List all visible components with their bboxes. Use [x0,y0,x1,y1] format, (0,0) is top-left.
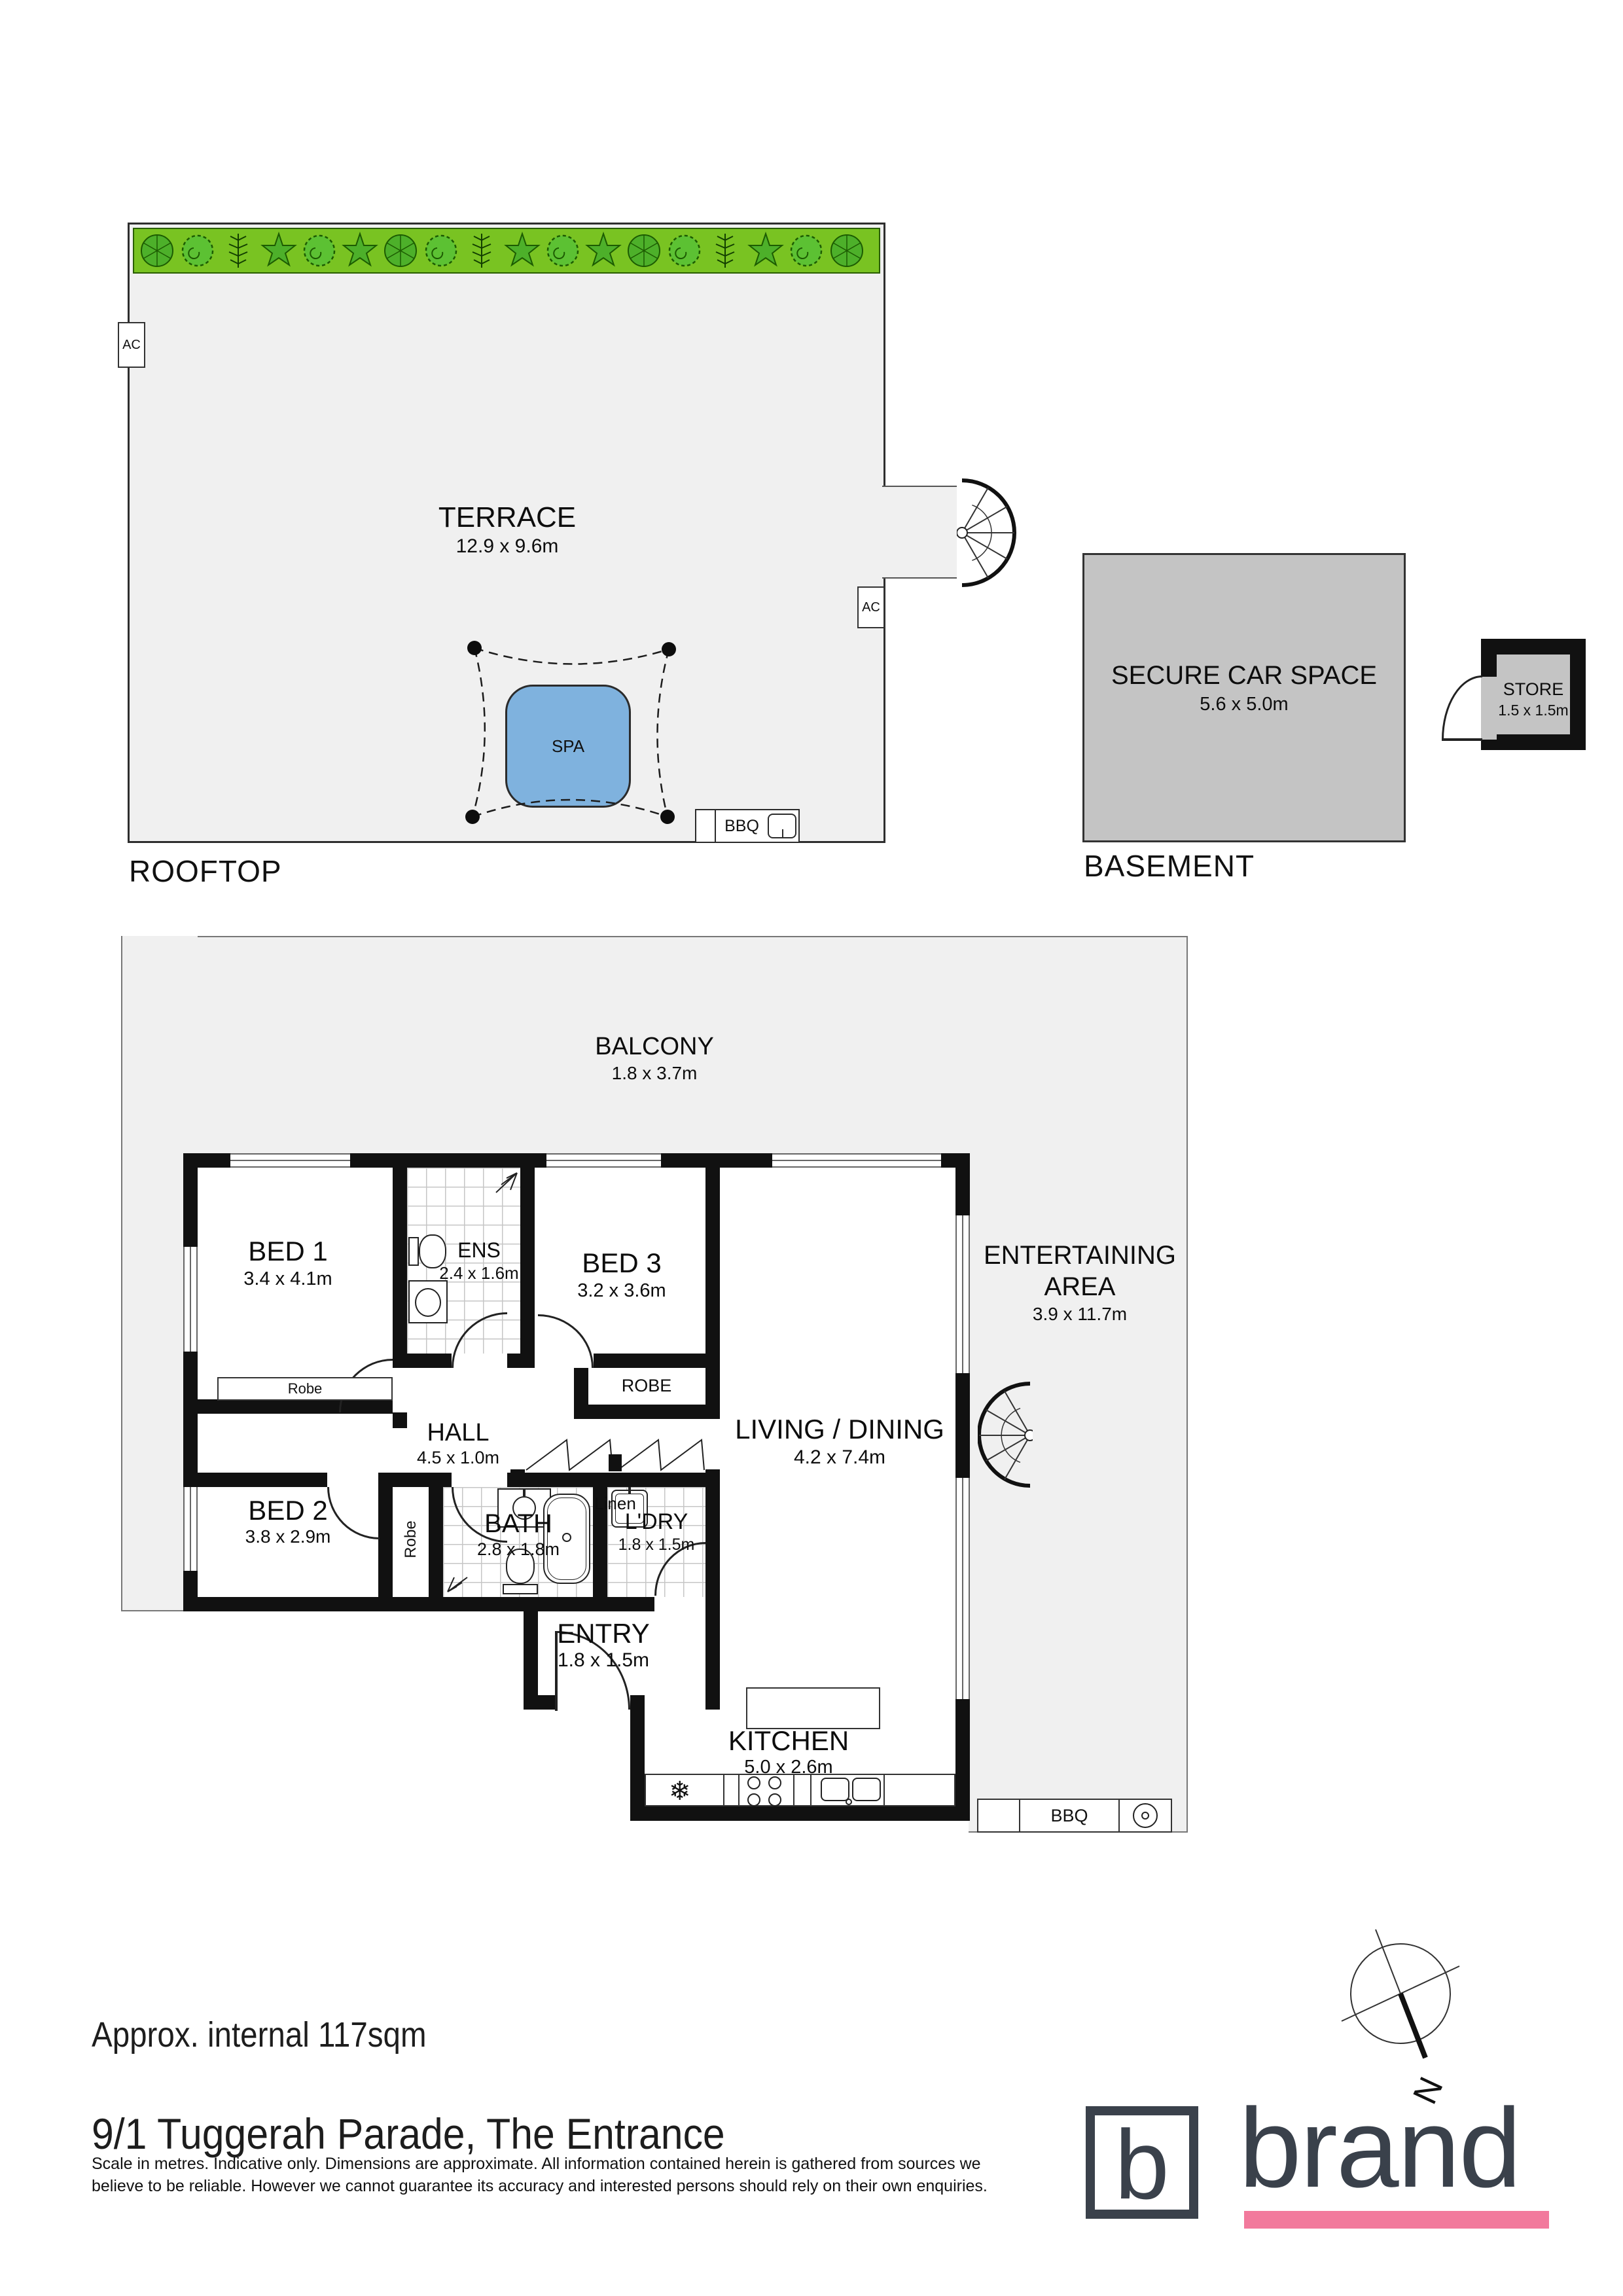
wall-segment [183,1597,654,1611]
spiral-staircase-icon [957,475,1017,592]
floor-plan-page: AC AC TERRACE 12.9 x 9.6m SPA BBQ [0,0,1623,2296]
bed1-dims: 3.4 x 4.1m [243,1268,332,1290]
ac-unit-label: AC [118,322,145,368]
drain-icon [562,1533,571,1542]
brand-logo-letter: b [1115,2119,1169,2210]
ldry-dims: 1.8 x 1.5m [618,1535,695,1554]
bed3-door-arc [538,1314,594,1368]
store-door-leaf [1442,738,1482,741]
ens-label: ENS [457,1238,501,1263]
wall-segment [507,1473,720,1487]
store-door-arc [1442,675,1482,740]
bbq-burner-icon [1118,1800,1171,1831]
entry-label: ENTRY [557,1618,650,1649]
wall-segment [630,1695,645,1821]
bench-divider [793,1774,794,1806]
wall-segment [955,1153,970,1215]
robe-bed3-label: ROBE [622,1376,672,1396]
kitchen-bench [645,1774,955,1806]
window [546,1153,661,1168]
bbq-burner-icon [768,814,796,838]
wall-segment [520,1153,535,1368]
ens-dims: 2.4 x 1.6m [439,1263,518,1283]
balcony-dims: 1.8 x 3.7m [612,1063,698,1084]
store-dims: 1.5 x 1.5m [1498,702,1568,719]
sink-icon [821,1778,849,1801]
bed3-dims: 3.2 x 3.6m [577,1280,666,1302]
bed2-dims: 3.8 x 2.9m [245,1526,331,1547]
shower-icon [488,1170,520,1202]
internal-area-text: Approx. internal 117sqm [92,2015,427,2055]
bbq-label: BBQ [1020,1806,1118,1826]
cooktop-burner-icon [768,1776,781,1789]
window [183,1476,198,1571]
disclaimer-line-2: believe to be reliable. However we canno… [92,2177,988,2196]
cooktop-burner-icon [747,1793,760,1806]
basin-icon [415,1288,441,1317]
basin-tap-icon [523,1488,526,1496]
rooftop-bbq: BBQ [695,809,800,843]
bench-divider [810,1774,811,1806]
wall-segment [393,1153,407,1359]
wall-segment [183,1473,327,1487]
spa-canopy-icon [452,628,687,838]
cooktop-burner-icon [747,1776,760,1789]
compass-icon: N [1335,1924,1531,2121]
tap-icon [846,1799,852,1805]
terrace-label: TERRACE [438,501,576,534]
brand-underline [1244,2211,1549,2229]
wall-segment [378,1473,444,1487]
store-door-gap [1481,677,1497,740]
wall-segment [955,1699,970,1821]
ac-text: AC [122,338,141,353]
bench-divider [723,1774,724,1806]
entertaining-label-1: ENTERTAINING [984,1241,1176,1270]
address-text: 9/1 Tuggerah Parade, The Entrance [92,2109,725,2159]
balcony-label: BALCONY [595,1033,714,1061]
disclaimer-line-1: Scale in metres. Indicative only. Dimens… [92,2155,981,2174]
living-label: LIVING / DINING [735,1414,944,1445]
balcony-area [121,936,970,1168]
hall-dims: 4.5 x 1.0m [417,1448,499,1468]
wall-segment [393,1354,452,1368]
car-space-label: SECURE CAR SPACE [1111,661,1377,691]
robe-bed1: Robe [217,1377,393,1401]
wall-segment [594,1354,720,1368]
bench-divider [738,1774,740,1806]
window [772,1153,941,1168]
terrace-dims: 12.9 x 9.6m [456,535,559,558]
entry-dims: 1.8 x 1.5m [558,1649,649,1672]
brand-logo-box: b [1086,2106,1198,2219]
wall-segment [524,1695,556,1710]
kitchen-label: KITCHEN [728,1725,849,1757]
bed1-label: BED 1 [248,1236,327,1267]
wall-segment [393,1412,407,1428]
window [183,1247,198,1352]
entertaining-dims: 3.9 x 11.7m [1033,1304,1127,1325]
hall-label: HALL [427,1419,489,1447]
entertaining-label-2: AREA [1044,1272,1116,1302]
window [955,1215,970,1373]
window [230,1153,350,1168]
bed2-door-arc [327,1487,380,1539]
bifold-doors-icon [525,1437,705,1471]
robe-label: Robe [288,1380,323,1397]
wall-segment [429,1487,443,1611]
wall-segment [378,1487,393,1597]
bench-divider [883,1774,885,1806]
garden-strip [133,228,880,274]
store-label: STORE [1503,679,1564,700]
fridge-icon: ❄ [669,1776,691,1806]
kitchen-island [746,1687,880,1729]
entertaining-bbq-counter: BBQ [977,1799,1172,1833]
living-dims: 4.2 x 7.4m [794,1446,885,1469]
cooktop-burner-icon [768,1793,781,1806]
compass-north-label: N [1405,2071,1450,2109]
garden-plants-icon [134,229,879,272]
ac-unit-label-2: AC [857,586,885,628]
bath-label: BATH [484,1509,552,1539]
rooftop-caption: ROOFTOP [129,853,282,889]
robe-bed2-label: Robe [402,1520,420,1558]
bed2-label: BED 2 [248,1495,327,1526]
bath-dims: 2.8 x 1.8m [477,1539,560,1560]
ac-text: AC [862,600,880,615]
window [955,1478,970,1699]
toilet-icon [408,1237,419,1266]
wall-segment [955,1373,970,1478]
spiral-staircase-icon [978,1381,1033,1490]
shower-icon [445,1568,474,1594]
wall-segment [574,1405,720,1419]
wall-segment [705,1469,720,1710]
laundry-tap-icon [628,1487,631,1494]
bbq-label: BBQ [716,817,768,836]
bed3-label: BED 3 [582,1247,661,1279]
stair-landing [882,486,957,579]
wall-segment [705,1153,720,1419]
toilet-icon [503,1584,538,1594]
wall-segment [444,1473,452,1487]
wall-segment [630,1806,970,1821]
wall-segment [507,1354,535,1368]
sink-icon [852,1778,881,1801]
basement-caption: BASEMENT [1084,848,1255,884]
ldry-label: L'DRY [625,1509,688,1535]
car-space-dims: 5.6 x 5.0m [1200,694,1288,715]
counter-divider [978,1800,1020,1831]
bbq-divider [696,810,716,842]
